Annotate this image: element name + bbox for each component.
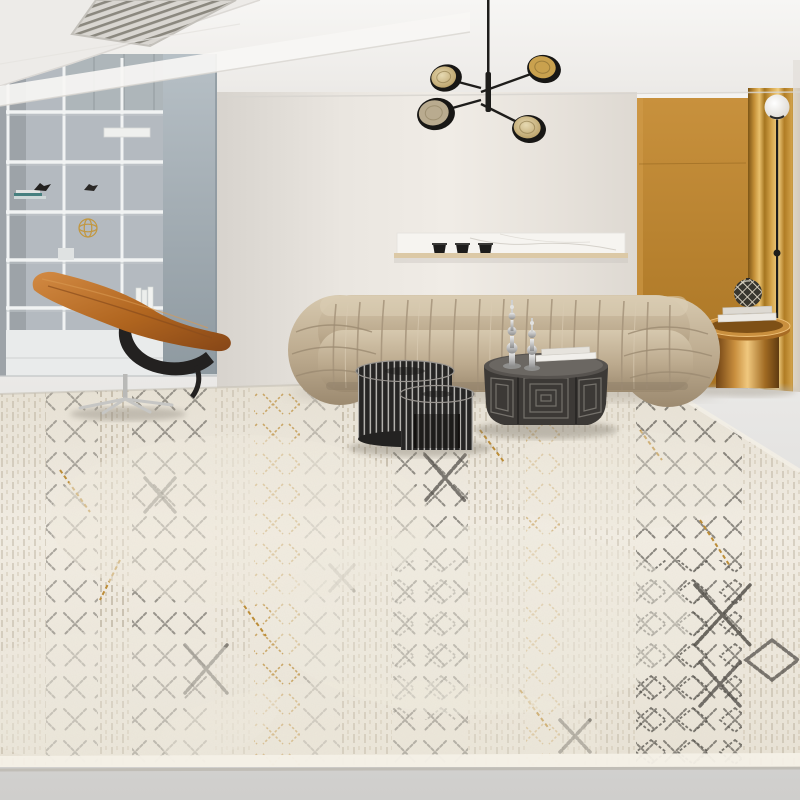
scene-canvas bbox=[0, 0, 800, 800]
wall-shelf bbox=[394, 233, 628, 263]
shelving bbox=[0, 54, 184, 392]
side-table-books bbox=[718, 306, 776, 322]
black-cups bbox=[432, 243, 493, 253]
living-room-photo bbox=[0, 0, 800, 800]
